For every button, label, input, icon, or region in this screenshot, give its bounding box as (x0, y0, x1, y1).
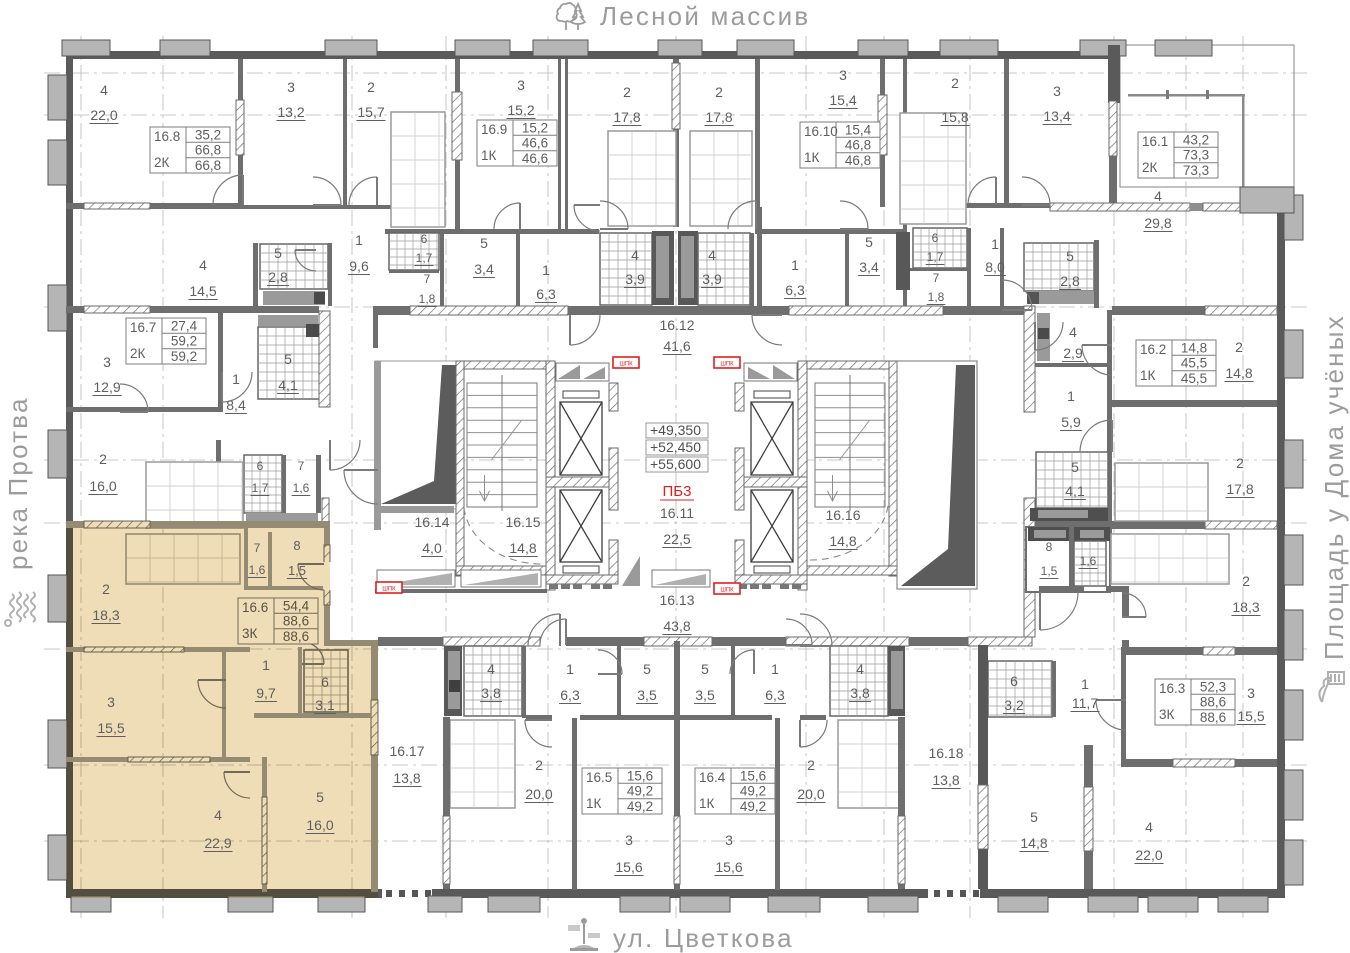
svg-text:4: 4 (1154, 188, 1162, 204)
svg-text:13,2: 13,2 (277, 104, 304, 120)
svg-text:16.1: 16.1 (1142, 134, 1168, 149)
svg-text:1,8: 1,8 (928, 290, 945, 304)
svg-text:3: 3 (103, 354, 111, 370)
svg-text:59,2: 59,2 (171, 334, 197, 349)
svg-text:ПБ3: ПБ3 (663, 483, 692, 500)
svg-text:16.10: 16.10 (804, 124, 838, 139)
svg-text:4,0: 4,0 (422, 540, 442, 556)
svg-text:59,2: 59,2 (171, 349, 197, 364)
svg-text:45,5: 45,5 (1181, 356, 1207, 371)
svg-text:52,3: 52,3 (1200, 679, 1226, 694)
svg-text:7: 7 (254, 541, 261, 555)
svg-text:3: 3 (625, 832, 633, 848)
svg-text:1: 1 (232, 371, 240, 387)
svg-text:17,8: 17,8 (1226, 481, 1253, 497)
svg-text:Лесной массив: Лесной массив (600, 1, 810, 31)
svg-text:16.9: 16.9 (481, 122, 507, 137)
svg-text:14,5: 14,5 (189, 283, 216, 299)
svg-text:9,6: 9,6 (349, 258, 369, 274)
svg-text:2: 2 (1235, 339, 1243, 355)
svg-text:2К: 2К (130, 346, 146, 361)
svg-text:18,3: 18,3 (92, 607, 119, 623)
svg-text:1,8: 1,8 (419, 292, 436, 306)
svg-text:1К: 1К (1140, 368, 1156, 383)
svg-text:16.11: 16.11 (660, 505, 694, 521)
svg-text:1: 1 (355, 232, 363, 248)
svg-text:5: 5 (1071, 459, 1079, 475)
svg-text:7: 7 (933, 271, 940, 285)
svg-text:15,5: 15,5 (97, 720, 124, 736)
svg-text:2,9: 2,9 (1063, 345, 1083, 361)
svg-text:5: 5 (480, 235, 488, 251)
svg-text:45,5: 45,5 (1181, 371, 1207, 386)
svg-text:46,6: 46,6 (522, 136, 548, 151)
svg-text:5: 5 (316, 789, 324, 805)
svg-text:2: 2 (807, 757, 815, 773)
svg-text:15,4: 15,4 (845, 122, 872, 137)
svg-text:49,2: 49,2 (740, 784, 766, 799)
svg-text:1,6: 1,6 (293, 481, 310, 495)
svg-text:3,8: 3,8 (850, 685, 870, 701)
svg-text:3: 3 (1247, 685, 1255, 701)
svg-text:22,5: 22,5 (663, 531, 690, 547)
svg-text:16.16: 16.16 (825, 507, 860, 523)
svg-text:+49,350: +49,350 (650, 422, 701, 438)
svg-text:15,7: 15,7 (357, 104, 384, 120)
svg-text:3,2: 3,2 (1004, 697, 1024, 713)
svg-text:3: 3 (517, 77, 525, 93)
svg-text:20,0: 20,0 (525, 786, 552, 802)
svg-text:1: 1 (1081, 676, 1089, 692)
svg-text:3: 3 (725, 832, 733, 848)
svg-text:1К: 1К (586, 796, 602, 811)
svg-text:3,8: 3,8 (481, 685, 501, 701)
svg-text:2: 2 (951, 75, 959, 91)
svg-text:2К: 2К (1142, 160, 1158, 175)
svg-text:35,2: 35,2 (195, 127, 221, 142)
svg-text:5: 5 (865, 234, 873, 250)
svg-text:ШПК: ШПК (720, 362, 734, 368)
svg-text:16.15: 16.15 (505, 514, 540, 530)
svg-text:4,1: 4,1 (278, 377, 298, 393)
svg-text:Площадь у Дома учёных: Площадь у Дома учёных (1319, 314, 1349, 660)
svg-text:7: 7 (424, 272, 431, 286)
svg-text:16.3: 16.3 (1159, 681, 1185, 696)
svg-text:6: 6 (1010, 673, 1018, 689)
svg-text:16.17: 16.17 (389, 743, 424, 759)
svg-text:2,8: 2,8 (268, 269, 288, 285)
svg-text:14,8: 14,8 (509, 540, 536, 556)
svg-text:22,0: 22,0 (90, 107, 117, 123)
svg-text:17,8: 17,8 (705, 109, 732, 125)
svg-text:4: 4 (199, 257, 207, 273)
svg-text:2,8: 2,8 (1060, 273, 1080, 289)
svg-text:29,8: 29,8 (1144, 215, 1171, 231)
svg-text:1,6: 1,6 (249, 563, 266, 577)
svg-text:3: 3 (107, 694, 115, 710)
svg-text:1К: 1К (481, 148, 497, 163)
svg-text:8,0: 8,0 (985, 259, 1005, 275)
svg-text:16.14: 16.14 (414, 514, 449, 530)
svg-text:43,2: 43,2 (1183, 132, 1209, 147)
svg-text:6,3: 6,3 (536, 286, 556, 302)
svg-text:3К: 3К (1159, 707, 1175, 722)
svg-text:73,3: 73,3 (1183, 148, 1209, 163)
svg-text:15,2: 15,2 (507, 102, 534, 118)
svg-text:4: 4 (214, 807, 222, 823)
svg-text:27,4: 27,4 (171, 318, 198, 333)
svg-text:43,8: 43,8 (663, 618, 690, 634)
svg-text:8: 8 (293, 538, 300, 553)
svg-text:66,8: 66,8 (195, 158, 221, 173)
svg-text:5: 5 (1030, 809, 1038, 825)
svg-text:3,9: 3,9 (702, 271, 722, 287)
svg-text:4: 4 (1069, 324, 1077, 340)
svg-text:6,3: 6,3 (765, 687, 785, 703)
svg-text:река Протва: река Протва (3, 396, 33, 570)
svg-text:5: 5 (284, 351, 292, 367)
svg-text:1,5: 1,5 (288, 563, 306, 578)
svg-text:4: 4 (487, 661, 495, 677)
svg-text:2: 2 (623, 84, 631, 100)
svg-text:3: 3 (287, 79, 295, 95)
svg-text:66,8: 66,8 (195, 143, 221, 158)
svg-text:16.2: 16.2 (1140, 342, 1166, 357)
svg-text:4: 4 (708, 247, 716, 263)
svg-text:4: 4 (1145, 819, 1153, 835)
svg-text:1: 1 (1067, 388, 1075, 404)
svg-text:ШПК: ШПК (720, 588, 734, 594)
svg-text:15,6: 15,6 (627, 768, 653, 783)
svg-text:15,6: 15,6 (715, 859, 742, 875)
svg-text:18,3: 18,3 (1232, 599, 1259, 615)
svg-text:5: 5 (274, 245, 282, 261)
svg-text:9,7: 9,7 (256, 685, 276, 701)
svg-text:4,1: 4,1 (1065, 483, 1085, 499)
svg-text:5,9: 5,9 (1061, 414, 1081, 430)
svg-text:5: 5 (701, 661, 709, 677)
svg-text:1,7: 1,7 (416, 251, 433, 265)
svg-text:20,0: 20,0 (797, 786, 824, 802)
svg-text:ШПК: ШПК (382, 587, 396, 593)
svg-text:16.13: 16.13 (659, 592, 694, 608)
svg-text:16,0: 16,0 (306, 817, 333, 833)
svg-text:4: 4 (856, 661, 864, 677)
svg-text:8,4: 8,4 (226, 397, 246, 413)
svg-text:46,8: 46,8 (845, 153, 871, 168)
svg-text:1К: 1К (804, 150, 820, 165)
svg-text:+52,450: +52,450 (650, 439, 701, 455)
svg-text:11,7: 11,7 (1072, 695, 1098, 711)
svg-text:14,8: 14,8 (1181, 340, 1207, 355)
svg-text:ул. Цветкова: ул. Цветкова (613, 923, 794, 953)
svg-text:2: 2 (535, 757, 543, 773)
svg-text:3: 3 (1053, 83, 1061, 99)
svg-text:1: 1 (542, 262, 550, 278)
svg-text:5: 5 (1066, 248, 1074, 264)
svg-text:12,9: 12,9 (93, 379, 120, 395)
svg-text:6: 6 (257, 459, 264, 473)
svg-text:2: 2 (367, 79, 375, 95)
svg-text:13,4: 13,4 (1043, 108, 1070, 124)
svg-text:15,6: 15,6 (740, 768, 766, 783)
svg-text:49,2: 49,2 (740, 799, 766, 814)
svg-text:16.5: 16.5 (586, 770, 612, 785)
svg-text:2: 2 (99, 451, 107, 467)
svg-text:7: 7 (298, 459, 305, 473)
svg-text:46,8: 46,8 (845, 138, 871, 153)
svg-text:3,5: 3,5 (637, 687, 657, 703)
svg-text:15,8: 15,8 (941, 109, 968, 125)
svg-text:16.18: 16.18 (928, 745, 963, 761)
svg-text:16.7: 16.7 (130, 320, 156, 335)
svg-text:16.12: 16.12 (659, 317, 694, 333)
svg-text:3: 3 (839, 67, 847, 83)
svg-text:3,9: 3,9 (625, 271, 645, 287)
svg-text:1: 1 (791, 257, 799, 273)
svg-text:6,3: 6,3 (785, 282, 805, 298)
svg-text:46,6: 46,6 (522, 151, 548, 166)
svg-text:2: 2 (715, 84, 723, 100)
svg-text:1,6: 1,6 (1080, 554, 1097, 568)
svg-text:+55,600: +55,600 (650, 456, 701, 472)
svg-text:1: 1 (566, 661, 574, 677)
svg-text:15,5: 15,5 (1237, 708, 1264, 724)
svg-text:22,0: 22,0 (1135, 847, 1162, 863)
svg-text:1,5: 1,5 (1041, 564, 1058, 578)
svg-text:88,6: 88,6 (1200, 710, 1226, 725)
svg-text:1,7: 1,7 (252, 481, 269, 495)
svg-text:4: 4 (100, 82, 108, 98)
svg-text:41,6: 41,6 (663, 338, 690, 354)
svg-text:8: 8 (1046, 540, 1053, 554)
svg-text:13,8: 13,8 (932, 772, 959, 788)
svg-text:14,8: 14,8 (829, 533, 856, 549)
svg-text:1,7: 1,7 (927, 250, 944, 264)
svg-text:1К: 1К (699, 796, 715, 811)
svg-text:3,1: 3,1 (315, 697, 335, 713)
svg-text:6: 6 (421, 232, 428, 246)
svg-text:49,2: 49,2 (627, 799, 653, 814)
svg-text:6: 6 (932, 231, 939, 245)
svg-text:16.4: 16.4 (699, 770, 726, 785)
svg-text:15,4: 15,4 (829, 92, 856, 108)
svg-text:ШПК: ШПК (619, 362, 633, 368)
svg-text:88,6: 88,6 (1200, 695, 1226, 710)
svg-text:16.8: 16.8 (154, 129, 180, 144)
svg-text:22,9: 22,9 (204, 835, 231, 851)
svg-text:3,4: 3,4 (859, 259, 879, 275)
svg-text:1: 1 (991, 236, 999, 252)
svg-text:1: 1 (771, 661, 779, 677)
svg-text:14,8: 14,8 (1225, 365, 1252, 381)
svg-text:16,0: 16,0 (89, 478, 116, 494)
svg-text:3,5: 3,5 (695, 687, 715, 703)
svg-text:2: 2 (102, 581, 110, 597)
svg-text:1: 1 (262, 657, 270, 673)
svg-text:17,8: 17,8 (613, 109, 640, 125)
svg-text:13,8: 13,8 (393, 770, 420, 786)
svg-text:2: 2 (1236, 455, 1244, 471)
svg-text:4: 4 (631, 247, 639, 263)
svg-text:2К: 2К (154, 155, 170, 170)
svg-text:15,2: 15,2 (522, 120, 548, 135)
svg-text:6: 6 (321, 674, 329, 690)
svg-text:3,4: 3,4 (474, 261, 494, 277)
svg-text:6,3: 6,3 (560, 687, 580, 703)
svg-text:2: 2 (1242, 573, 1250, 589)
svg-text:15,6: 15,6 (615, 859, 642, 875)
svg-text:73,3: 73,3 (1183, 163, 1209, 178)
svg-text:5: 5 (643, 661, 651, 677)
svg-text:14,8: 14,8 (1020, 835, 1047, 851)
svg-text:49,2: 49,2 (627, 784, 653, 799)
